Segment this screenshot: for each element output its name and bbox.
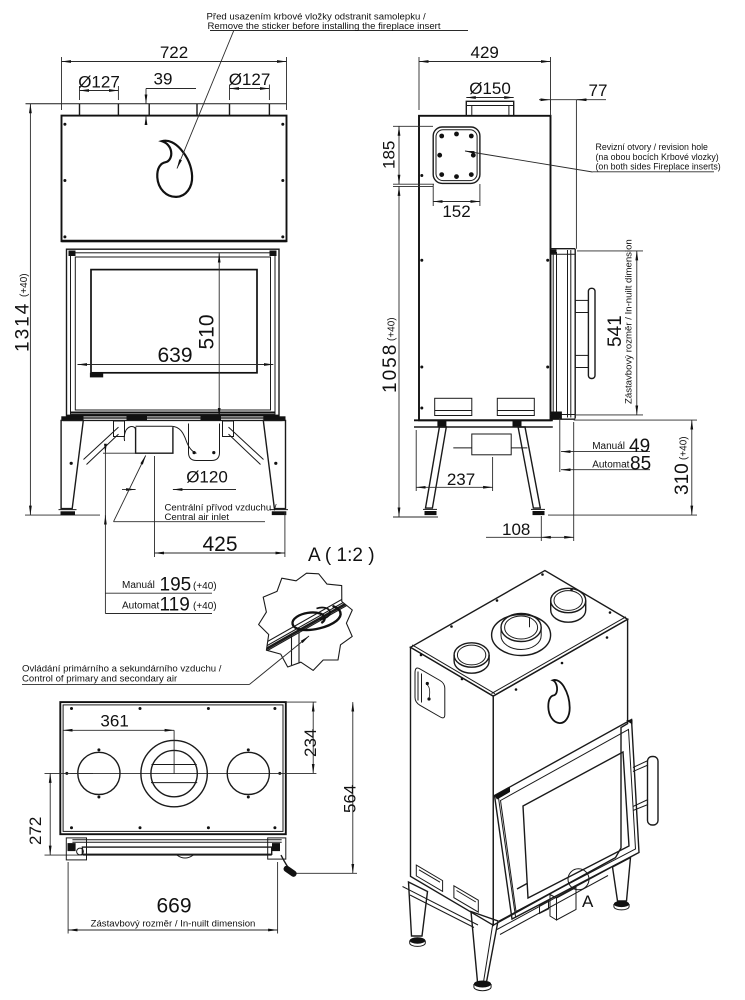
svg-text:(on both sides Fireplace inser: (on both sides Fireplace inserts) <box>596 162 721 172</box>
svg-text:Remove the sticker before inst: Remove the sticker before installing the… <box>208 21 441 32</box>
svg-text:(+40): (+40) <box>193 581 217 592</box>
svg-text:185: 185 <box>380 141 399 169</box>
svg-text:Ø127: Ø127 <box>78 73 120 92</box>
svg-text:1314: 1314 <box>13 302 34 352</box>
svg-text:85: 85 <box>630 454 651 475</box>
svg-text:Ø150: Ø150 <box>469 79 511 98</box>
svg-text:669: 669 <box>156 895 191 918</box>
svg-text:Zástavbový rozměr / In-nuilt d: Zástavbový rozměr / In-nuilt dimension <box>91 919 256 930</box>
svg-text:Control of primary and seconda: Control of primary and secondary air <box>22 674 178 685</box>
svg-text:119: 119 <box>160 595 190 616</box>
svg-text:(+40): (+40) <box>19 273 30 297</box>
svg-text:Zástavbový rozměr / In-nuilt d: Zástavbový rozměr / In-nuilt dimension <box>624 239 635 404</box>
svg-text:639: 639 <box>157 344 192 367</box>
svg-text:77: 77 <box>589 81 608 100</box>
svg-text:722: 722 <box>160 43 188 62</box>
svg-text:237: 237 <box>447 470 475 489</box>
svg-text:Automat: Automat <box>122 601 159 612</box>
svg-text:152: 152 <box>442 202 470 221</box>
svg-text:(+40): (+40) <box>387 317 398 341</box>
svg-text:A ( 1:2 ): A ( 1:2 ) <box>308 545 375 566</box>
svg-text:(na obou bocích Krbové vlozky): (na obou bocích Krbové vlozky) <box>596 152 719 162</box>
svg-text:510: 510 <box>196 314 219 349</box>
svg-text:Revizní otvory / revision hole: Revizní otvory / revision hole <box>596 142 709 152</box>
svg-text:108: 108 <box>502 520 530 539</box>
svg-text:195: 195 <box>160 575 192 596</box>
svg-text:39: 39 <box>154 70 173 89</box>
svg-text:564: 564 <box>341 785 360 813</box>
svg-text:(+40): (+40) <box>679 436 690 460</box>
svg-text:A: A <box>582 892 594 911</box>
svg-text:Manuál: Manuál <box>122 580 155 591</box>
svg-text:234: 234 <box>301 729 320 757</box>
svg-text:310: 310 <box>672 463 693 495</box>
svg-text:361: 361 <box>100 712 128 731</box>
svg-text:425: 425 <box>202 533 237 556</box>
svg-text:Automat: Automat <box>592 460 629 471</box>
svg-text:272: 272 <box>26 817 45 845</box>
svg-text:Ø120: Ø120 <box>186 468 228 487</box>
svg-text:Ø127: Ø127 <box>229 70 271 89</box>
svg-text:Central air inlet: Central air inlet <box>165 512 230 523</box>
svg-text:1058: 1058 <box>380 343 401 393</box>
svg-text:Manuál: Manuál <box>592 441 625 452</box>
svg-text:(+40): (+40) <box>193 601 217 612</box>
svg-text:429: 429 <box>471 43 499 62</box>
